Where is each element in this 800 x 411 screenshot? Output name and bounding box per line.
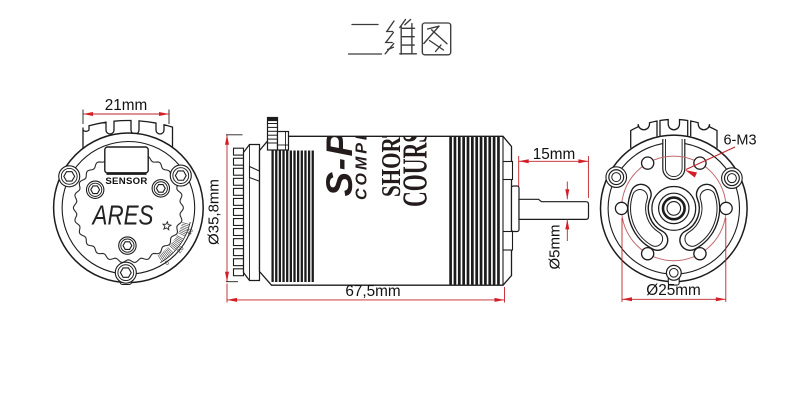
svg-text:SENSOR: SENSOR <box>105 176 147 187</box>
svg-text:15mm: 15mm <box>533 146 576 163</box>
svg-text:ARES: ARES <box>91 200 154 231</box>
svg-text:67,5mm: 67,5mm <box>345 283 400 300</box>
svg-text:Ø35,8mm: Ø35,8mm <box>206 179 223 245</box>
svg-text:Ø25mm: Ø25mm <box>646 282 700 299</box>
svg-text:6-M3: 6-M3 <box>723 133 756 149</box>
svg-text:Ø5mm: Ø5mm <box>547 225 564 270</box>
svg-text:21mm: 21mm <box>105 97 148 114</box>
